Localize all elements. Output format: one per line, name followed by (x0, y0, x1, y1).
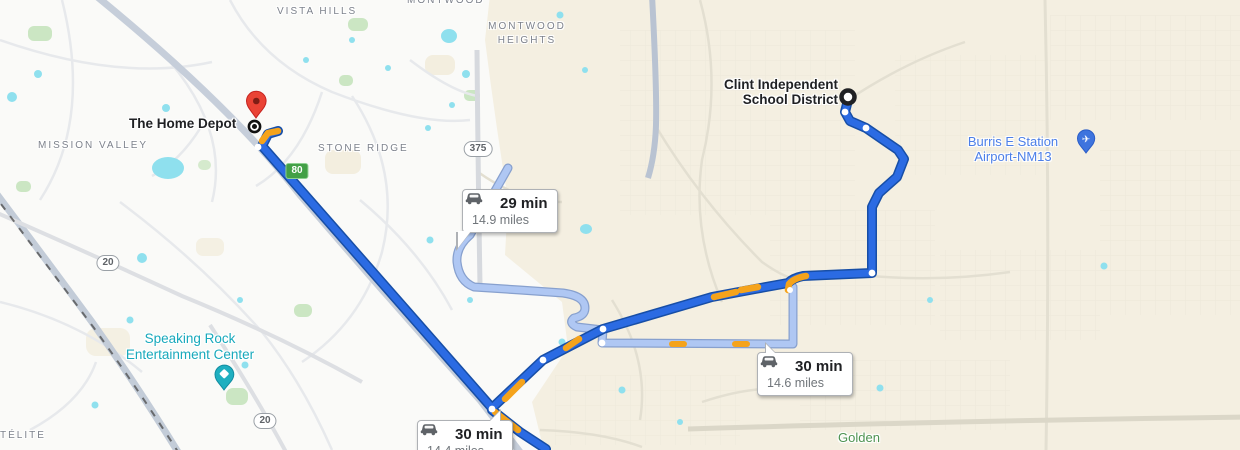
poi-label-airport[interactable]: Burris E Station Airport-NM13 (968, 134, 1058, 164)
car-icon (767, 359, 789, 374)
route-shield-375: 375 (464, 141, 493, 157)
badge-time: 29 min (500, 195, 548, 212)
minor-roads (0, 0, 478, 450)
area-label-montwood-heights: MONTWOOD HEIGHTS (488, 20, 566, 48)
badge-time: 30 min (795, 358, 843, 375)
destination-target-icon[interactable] (249, 121, 260, 132)
poi-label-speaking-rock[interactable]: Speaking Rock Entertainment Center (126, 331, 254, 363)
route-shield-20-west: 20 (96, 255, 119, 271)
car-icon (427, 427, 449, 442)
route-shield-20-south: 20 (253, 413, 276, 429)
poi-label-golden[interactable]: Golden (838, 430, 880, 445)
route-badge-30min-south[interactable]: 30 min 14.4 miles (417, 420, 513, 450)
poi-label-home-depot[interactable]: The Home Depot (129, 116, 236, 131)
airplane-icon: ✈ (1082, 135, 1090, 146)
poi-label-clint-isd[interactable]: Clint Independent School District (724, 77, 838, 107)
route-shield-80: 80 (285, 163, 308, 179)
map-canvas[interactable]: ✈ VISTA HILLS MONTWOOD MONTWOOD HEIGHTS … (0, 0, 1240, 450)
area-label-stone-ridge: STONE RIDGE (318, 143, 409, 154)
area-label-vista-hills: VISTA HILLS (277, 6, 357, 17)
area-label-montwood: MONTWOOD (407, 0, 485, 6)
attraction-pin[interactable] (215, 365, 234, 390)
area-label-satelite: TÉLITE (0, 430, 46, 441)
badge-time: 30 min (455, 426, 503, 443)
route-badge-29min[interactable]: 29 min 14.9 miles (462, 189, 558, 233)
route-badge-30min-east[interactable]: 30 min 14.6 miles (757, 352, 853, 396)
car-icon (472, 196, 494, 211)
badge-distance: 14.4 miles (427, 444, 503, 450)
destination-pin[interactable] (247, 91, 267, 118)
area-label-mission-valley: MISSION VALLEY (38, 140, 148, 151)
origin-marker[interactable] (842, 91, 855, 104)
badge-distance: 14.6 miles (767, 376, 843, 391)
badge-distance: 14.9 miles (472, 213, 548, 228)
map-base-layer: ✈ (0, 0, 1240, 450)
